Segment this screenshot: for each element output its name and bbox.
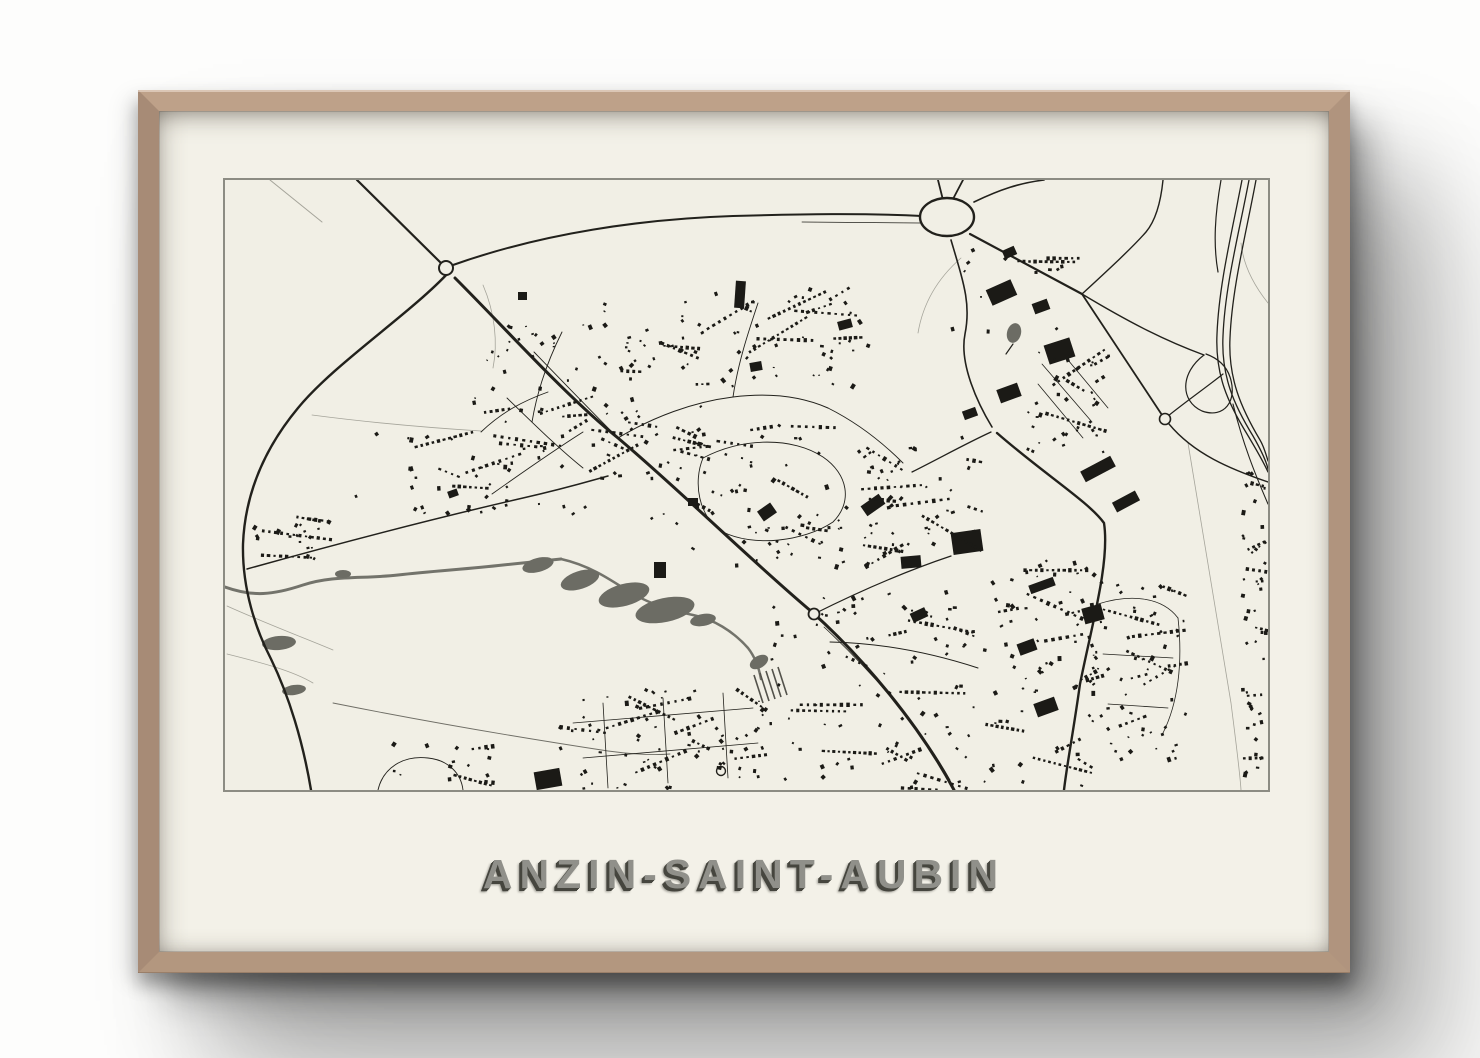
wall-background: ANZIN-SAINT-AUBIN <box>0 0 1480 1058</box>
map-svg <box>225 180 1268 790</box>
picture-frame: ANZIN-SAINT-AUBIN <box>138 90 1350 973</box>
city-map-print <box>223 178 1270 792</box>
poster-title: ANZIN-SAINT-AUBIN <box>159 851 1329 898</box>
poster-mat: ANZIN-SAINT-AUBIN <box>159 111 1329 952</box>
